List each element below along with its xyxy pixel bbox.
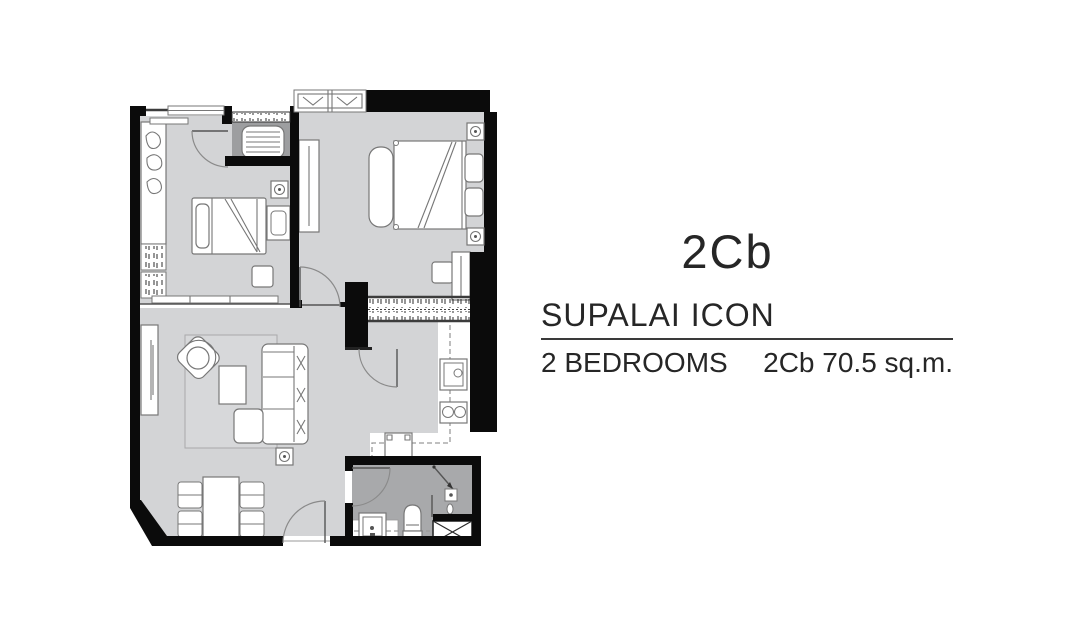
- hall-floor: [345, 433, 371, 458]
- folded-clothes-icon: [143, 274, 164, 296]
- stool-icon: [252, 266, 273, 287]
- fridge-icon: [385, 433, 412, 459]
- bench-icon: [369, 147, 393, 227]
- floor-plan: [0, 0, 1080, 640]
- nightstand-tray-icon: [271, 211, 286, 235]
- corridor-floor: [299, 300, 345, 322]
- divider-line: [541, 338, 953, 340]
- specs-row: 2 BEDROOMS 2Cb 70.5 sq.m.: [541, 347, 953, 379]
- stool-icon: [432, 262, 453, 283]
- ceiling-light-icon: [271, 181, 288, 198]
- tv-console-icon: [141, 325, 158, 415]
- kitchen-sink-icon: [440, 359, 467, 390]
- dining-table-icon: [203, 477, 239, 543]
- louver-hatch: [233, 113, 289, 121]
- bedrooms-label: 2 BEDROOMS: [541, 347, 728, 379]
- ceiling-light-icon: [467, 123, 484, 140]
- wall-shelf-icon: [150, 118, 188, 124]
- pillow-icon: [465, 188, 483, 216]
- ceiling-light-icon: [467, 228, 484, 245]
- pillow-icon: [196, 204, 209, 248]
- folded-clothes-icon: [143, 246, 164, 268]
- window: [168, 106, 224, 115]
- vanity-sink-icon: [359, 513, 386, 540]
- floorplan-sheet: 2Cb SUPALAI ICON 2 BEDROOMS 2Cb 70.5 sq.…: [0, 0, 1080, 640]
- floor-drain-icon: [445, 489, 457, 501]
- project-name: SUPALAI ICON: [541, 297, 775, 334]
- coffee-table-icon: [219, 366, 246, 404]
- builtin-cabinet-icon: [152, 296, 278, 303]
- unit-code-title: 2Cb: [615, 224, 840, 279]
- chaise-icon: [234, 409, 263, 443]
- wardrobe-icon: [141, 122, 166, 244]
- stove-icon: [440, 402, 467, 423]
- pillow-icon: [465, 154, 483, 182]
- toilet-icon: [403, 505, 422, 540]
- single-bed-icon: [192, 198, 266, 254]
- shower-valve-icon: [447, 504, 453, 514]
- ac-alcove: [242, 126, 284, 161]
- window: [294, 90, 366, 112]
- ceiling-light-icon: [276, 448, 293, 465]
- area-label: 2Cb 70.5 sq.m.: [763, 347, 953, 379]
